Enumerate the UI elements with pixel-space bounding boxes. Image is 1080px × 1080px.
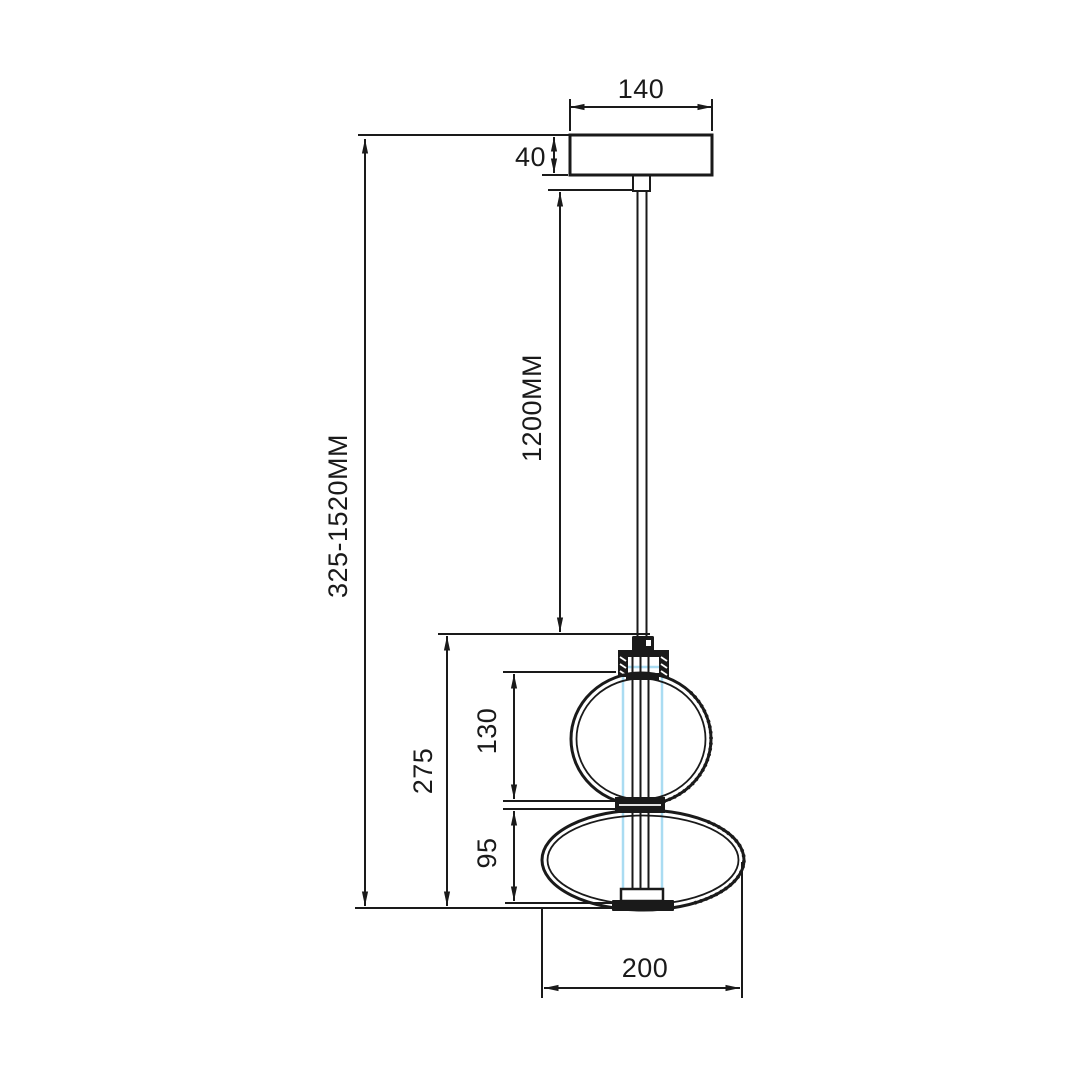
overall-height-label: 325-1520MM <box>323 434 353 598</box>
tube-bottom-fitting <box>621 889 663 901</box>
canopy-cable-connector <box>633 175 650 191</box>
suspension-cable <box>638 191 647 652</box>
lamp-figure <box>542 135 744 911</box>
cable-grip-notch <box>646 640 651 646</box>
ceiling-canopy <box>570 135 712 175</box>
dimension-lines <box>365 107 740 988</box>
inner-glass-tube <box>623 667 662 903</box>
lower-globe-height-label: 95 <box>472 837 502 868</box>
bottom-cap <box>612 889 674 911</box>
upper-globe-height-label: 130 <box>472 708 502 755</box>
dimension-labels: 140 40 1200MM 325-1520MM 275 130 95 200 <box>323 74 668 983</box>
central-rod <box>633 655 649 902</box>
cable-length-label: 1200MM <box>517 354 547 462</box>
canopy-height-label: 40 <box>515 142 546 172</box>
canopy-width-label: 140 <box>618 74 665 104</box>
shade-height-label: 275 <box>408 748 438 795</box>
pendant-lamp-diagram: 140 40 1200MM 325-1520MM 275 130 95 200 <box>0 0 1080 1080</box>
shade-diameter-label: 200 <box>622 953 669 983</box>
bottom-cap-band <box>612 900 674 911</box>
lower-globe-knurl <box>694 822 744 904</box>
dimension-drawing-canvas: 140 40 1200MM 325-1520MM 275 130 95 200 <box>0 0 1080 1080</box>
